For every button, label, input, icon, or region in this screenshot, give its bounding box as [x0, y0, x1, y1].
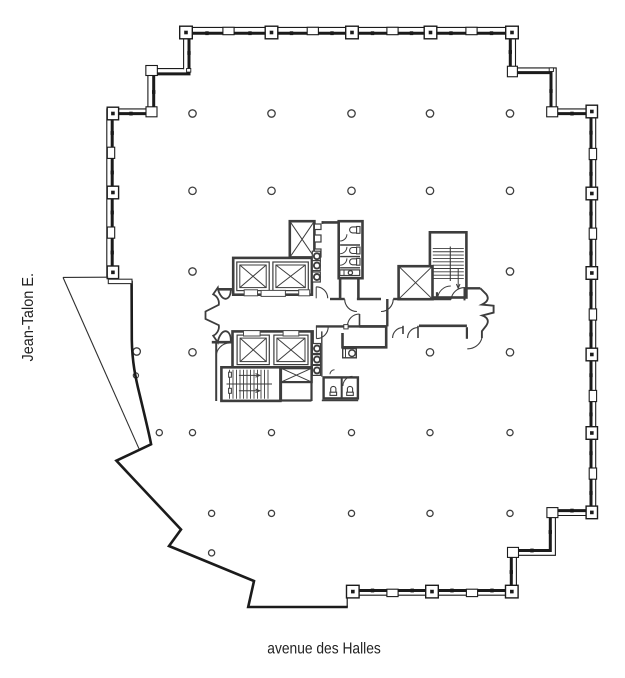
svg-text:avenue des Halles: avenue des Halles [267, 641, 381, 658]
svg-text:Jean-Talon E.: Jean-Talon E. [20, 273, 37, 362]
